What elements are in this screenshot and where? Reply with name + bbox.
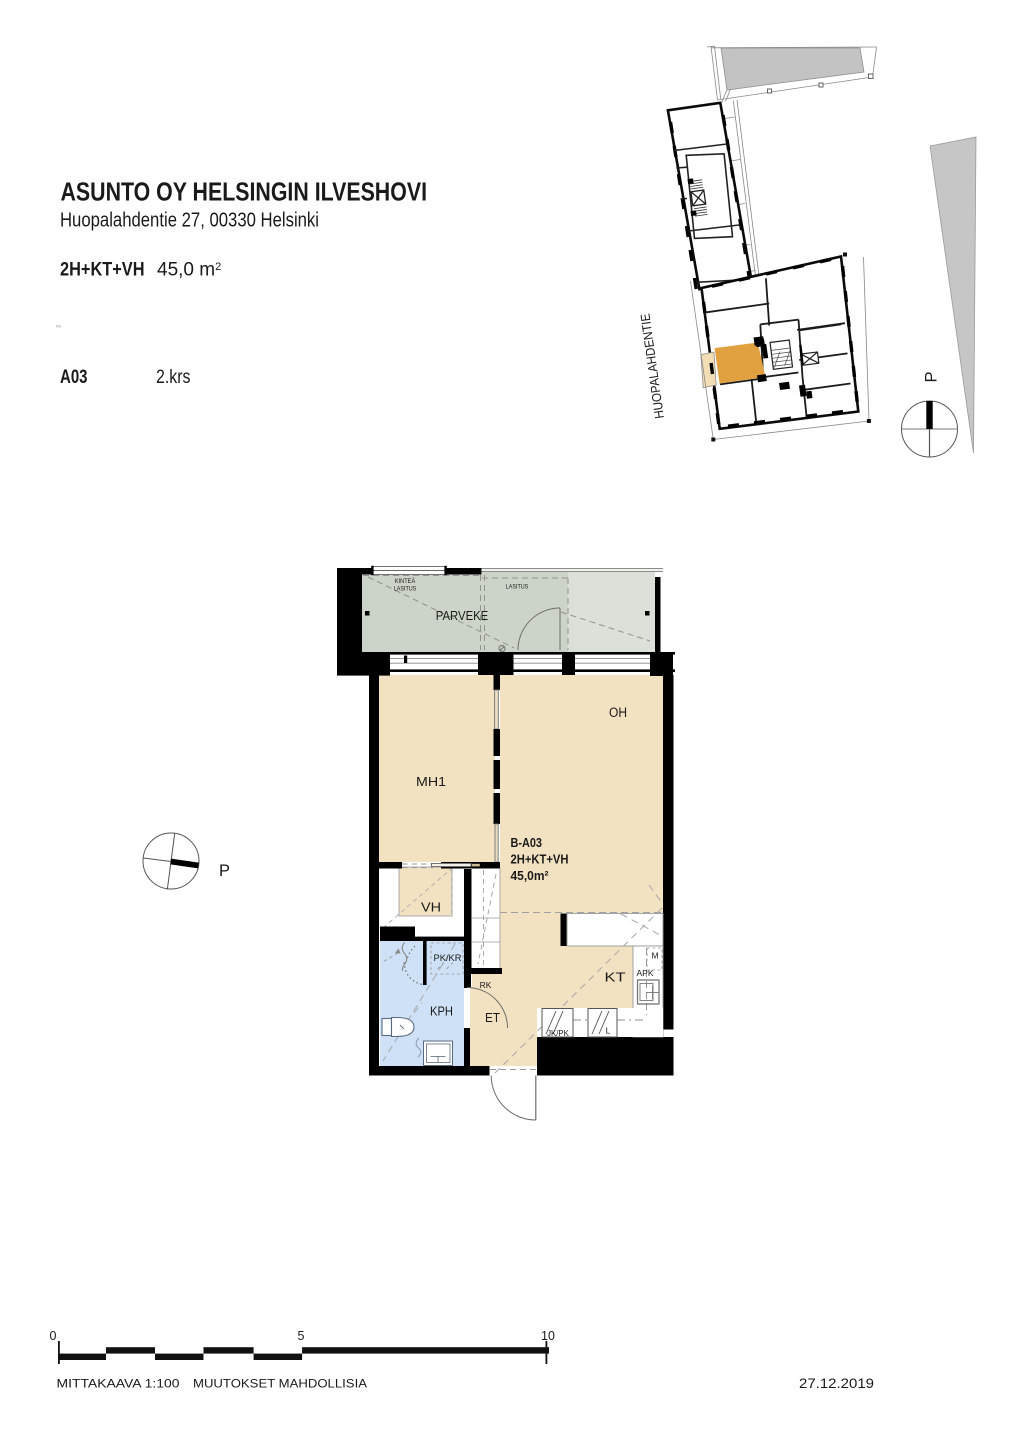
svg-text:PK/KR: PK/KR — [434, 953, 462, 964]
svg-text:VH: VH — [421, 900, 441, 915]
svg-text:B-A03: B-A03 — [511, 836, 543, 850]
svg-text:OH: OH — [609, 705, 627, 720]
svg-text:L: L — [606, 1026, 611, 1036]
svg-text:JK/PK: JK/PK — [547, 1029, 569, 1038]
svg-text:10: 10 — [541, 1329, 555, 1343]
svg-text:MH1: MH1 — [416, 774, 446, 789]
svg-text:5: 5 — [298, 1329, 305, 1343]
svg-text:ET: ET — [485, 1010, 500, 1025]
svg-text:P: P — [219, 862, 230, 880]
svg-text:LASITUS: LASITUS — [506, 584, 529, 591]
svg-text:RK: RK — [480, 980, 492, 990]
svg-text:LASITUS: LASITUS — [394, 586, 417, 593]
svg-text:M: M — [651, 951, 658, 961]
svg-text:2H+KT+VH: 2H+KT+VH — [511, 853, 569, 867]
svg-text:ASUNTO OY HELSINGIN ILVESHOVI: ASUNTO OY HELSINGIN ILVESHOVI — [61, 179, 428, 207]
svg-text:Huopalahdentie 27, 00330 Helsi: Huopalahdentie 27, 00330 Helsinki — [60, 210, 319, 232]
svg-text:45,0m²: 45,0m² — [511, 869, 549, 883]
svg-text:45,0 m2: 45,0 m2 — [157, 260, 221, 281]
svg-text:KPH: KPH — [430, 1004, 453, 1019]
svg-text:A03: A03 — [60, 367, 88, 388]
svg-text:MITTAKAAVA 1:100: MITTAKAAVA 1:100 — [57, 1377, 180, 1391]
svg-text:P: P — [923, 371, 941, 382]
svg-text:APK: APK — [636, 968, 653, 978]
svg-text:2.krs: 2.krs — [156, 367, 191, 388]
svg-text:27.12.2019: 27.12.2019 — [799, 1376, 874, 1391]
svg-text:KINTEÄ: KINTEÄ — [395, 577, 416, 585]
svg-text:KT: KT — [605, 970, 626, 985]
svg-text:PARVEKE: PARVEKE — [436, 609, 489, 623]
svg-text:2H+KT+VH: 2H+KT+VH — [60, 260, 145, 281]
svg-text:MUUTOKSET MAHDOLLISIA: MUUTOKSET MAHDOLLISIA — [193, 1377, 367, 1391]
svg-text:0: 0 — [50, 1329, 57, 1343]
